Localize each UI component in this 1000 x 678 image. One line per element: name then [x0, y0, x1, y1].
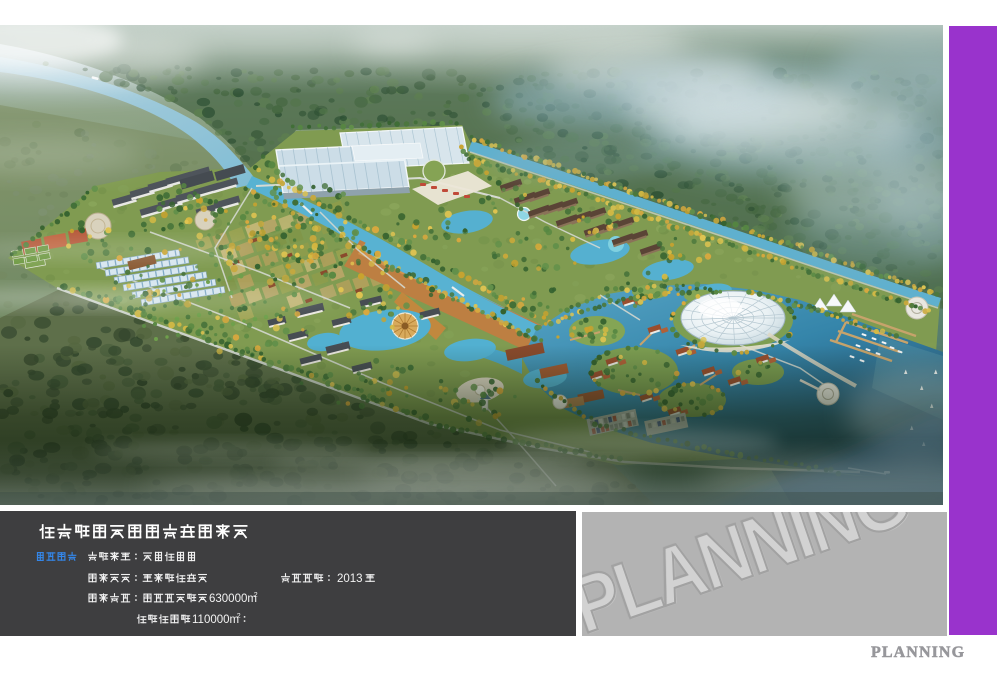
svg-text:2: 2: [254, 592, 258, 599]
svg-text:2013: 2013: [337, 573, 363, 585]
svg-text:630000m: 630000m: [209, 593, 257, 605]
svg-text:110000m: 110000m: [192, 614, 239, 626]
svg-text:2: 2: [237, 613, 241, 620]
